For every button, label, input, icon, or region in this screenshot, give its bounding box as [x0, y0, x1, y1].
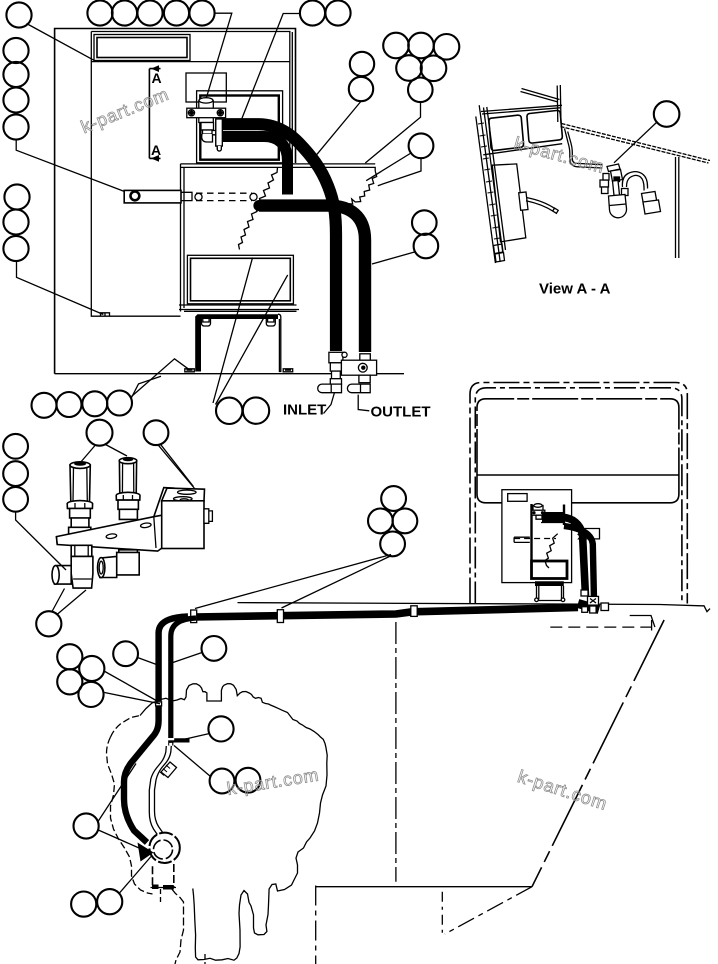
svg-text:A: A [152, 70, 162, 86]
svg-text:View A - A: View A - A [539, 281, 611, 298]
svg-text:INLET: INLET [283, 402, 326, 419]
svg-text:A: A [151, 142, 161, 158]
svg-text:OUTLET: OUTLET [371, 404, 431, 421]
